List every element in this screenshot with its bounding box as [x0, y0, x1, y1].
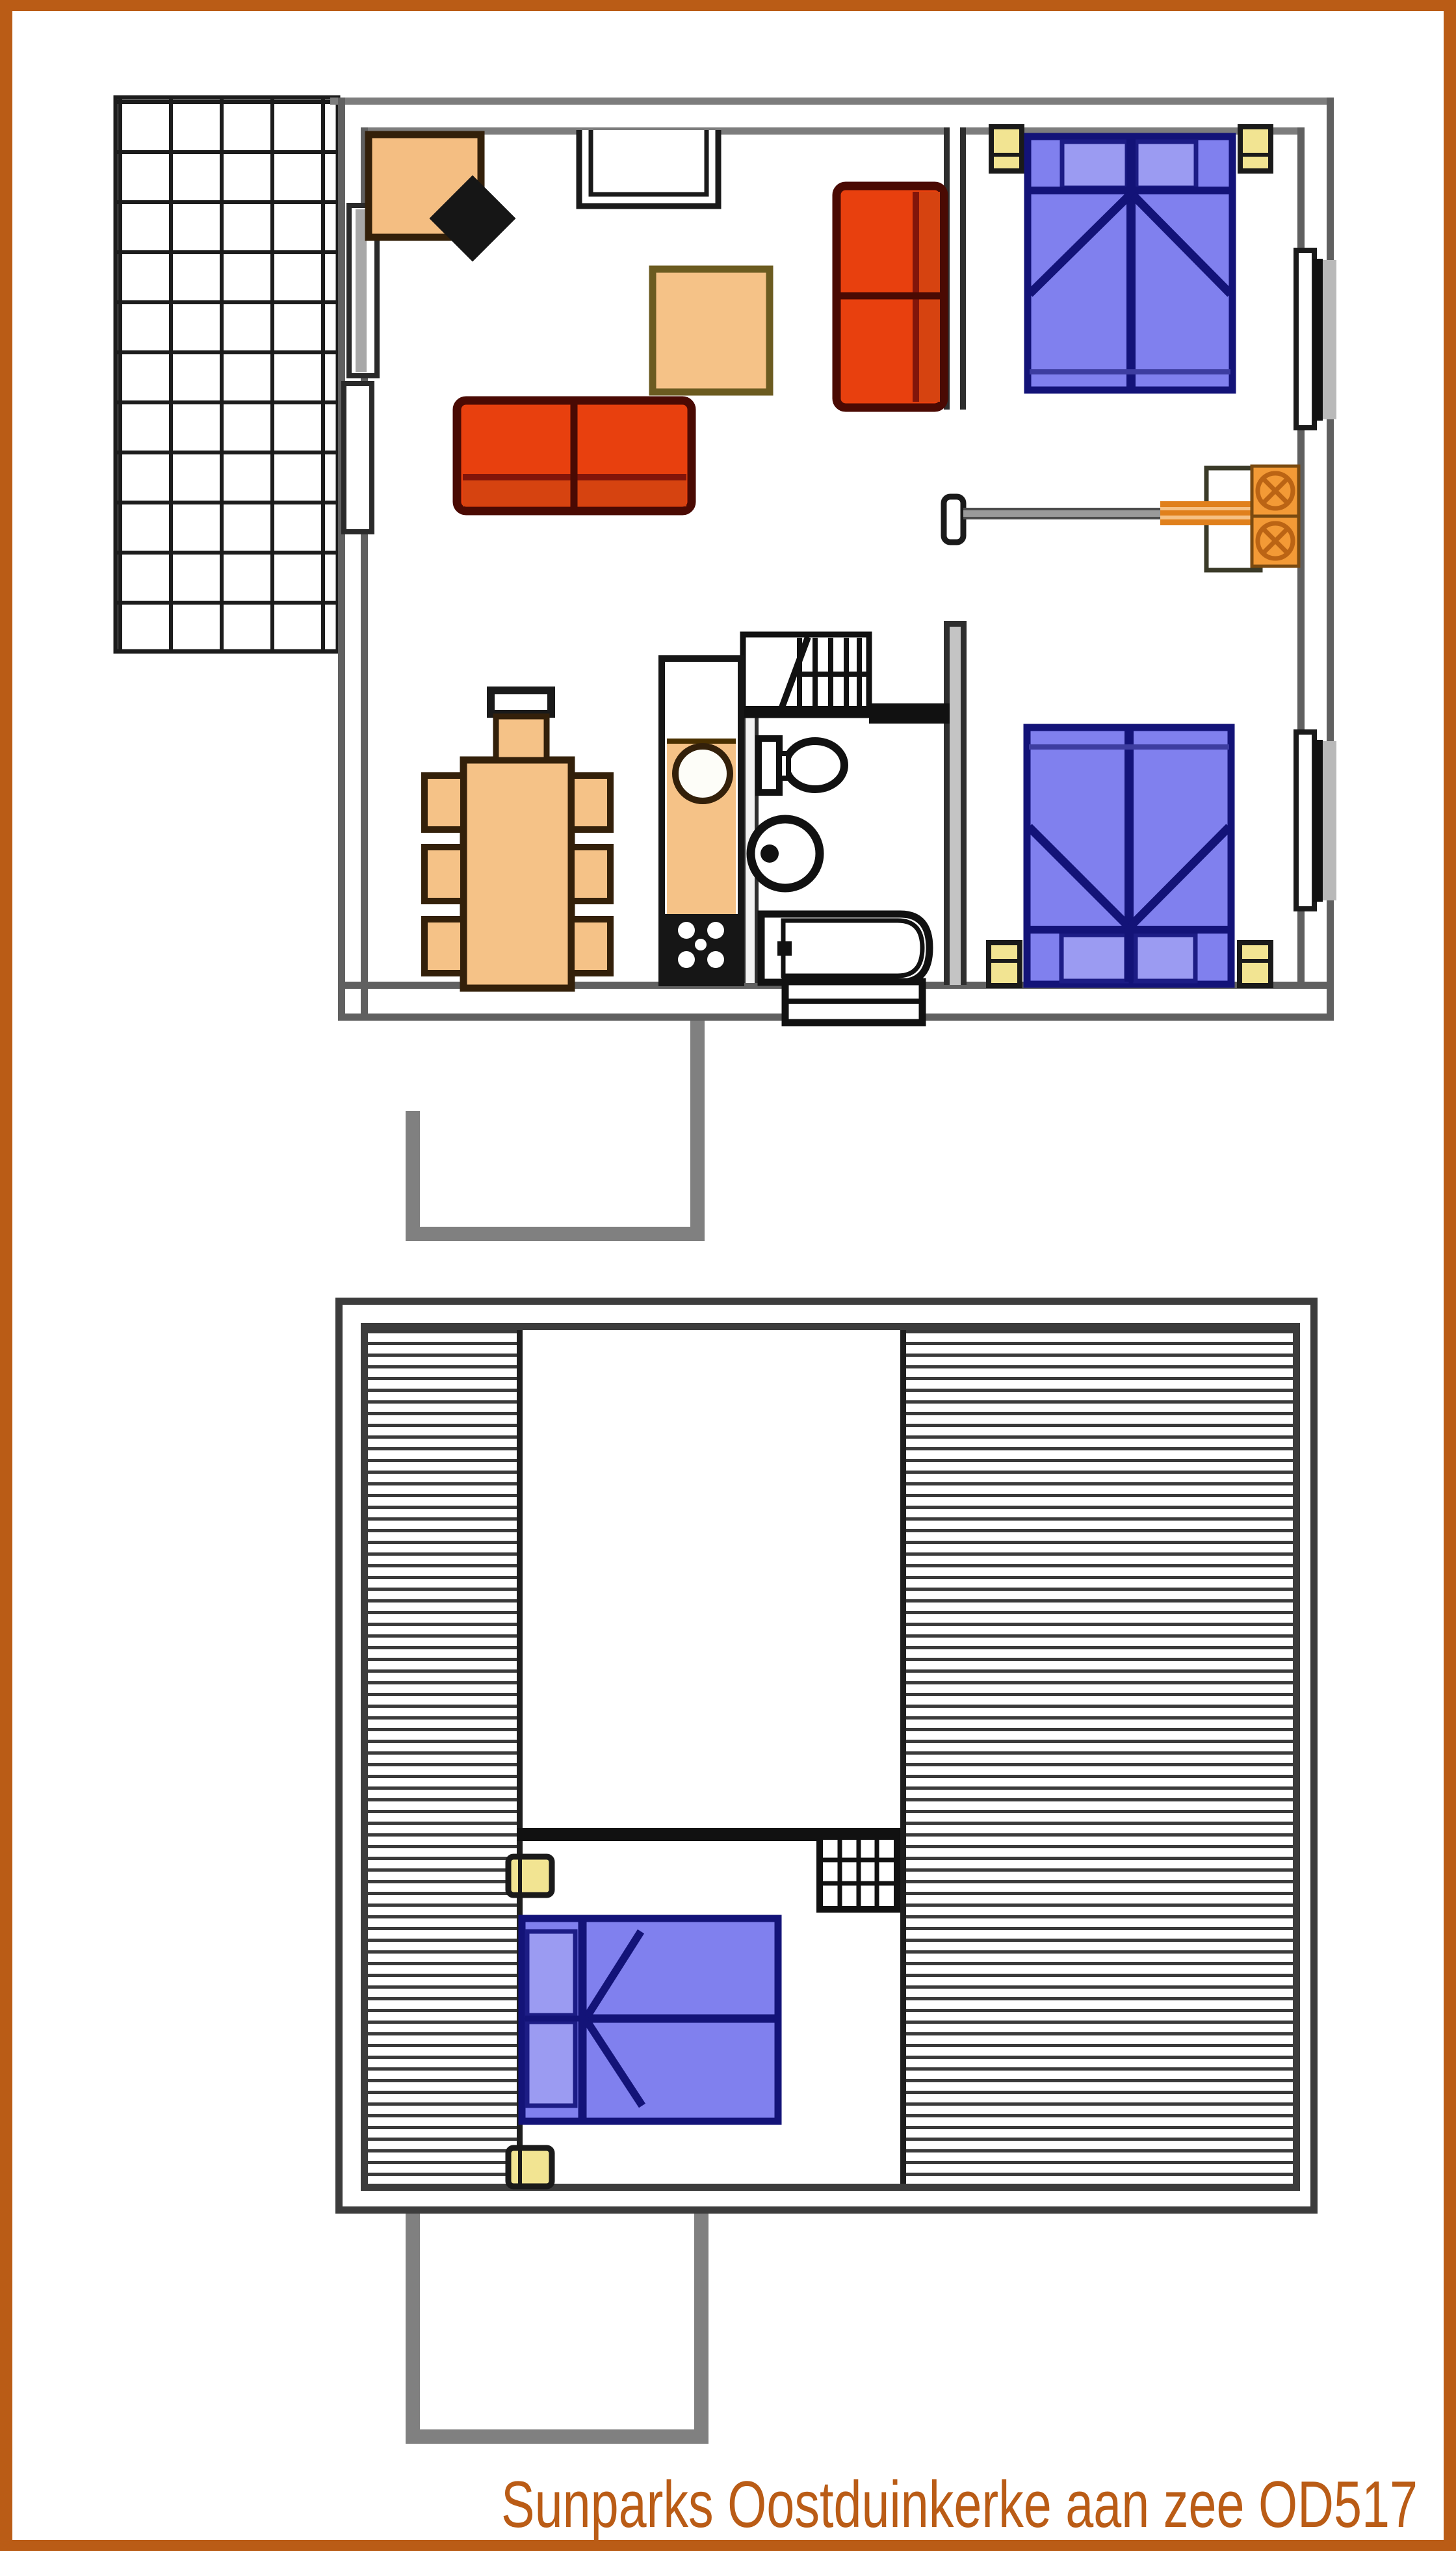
svg-text:Sunparks Oostduinkerke aan zee: Sunparks Oostduinkerke aan zee OD517: [501, 2468, 1418, 2541]
